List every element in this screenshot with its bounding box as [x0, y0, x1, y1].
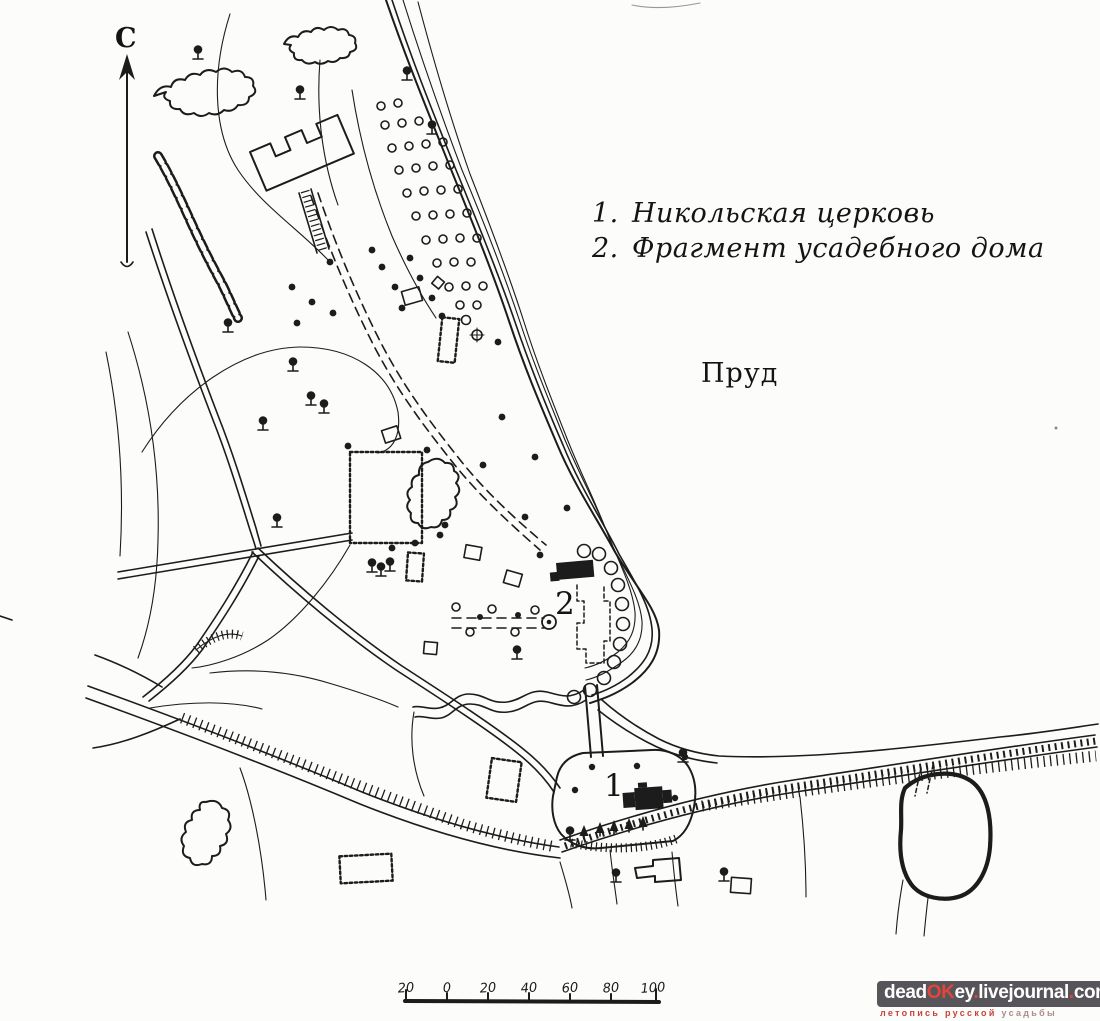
tree-clouds — [154, 27, 356, 865]
church-number-marker: 1 — [604, 768, 624, 804]
manor-number-marker: 2 — [555, 586, 575, 622]
garden-square — [350, 452, 459, 582]
legend-item-label: Никольская церковь — [632, 198, 935, 229]
watermark-site: deadOKey.livejournal.com — [877, 981, 1100, 1007]
pond-shoreline — [386, 0, 659, 703]
contours — [0, 3, 1058, 936]
map-legend: 1. Никольская церковь 2. Фрагмент усадеб… — [592, 198, 1045, 268]
north-arrow — [119, 54, 135, 267]
legend-item-label: Фрагмент усадебного дома — [632, 233, 1045, 264]
roads — [86, 229, 1097, 858]
legend-item-number: 2. — [592, 233, 632, 264]
manor-fragment — [452, 545, 630, 704]
legend-item-manor: 2. Фрагмент усадебного дома — [592, 233, 1045, 264]
scanned-estate-plan: С 1. Никольская церковь 2. Фрагмент усад… — [0, 0, 1100, 1021]
scale-tick-label: 20 — [397, 980, 415, 996]
scale-tick-label: 0 — [442, 981, 451, 997]
watermark-text-part: OK — [927, 982, 955, 1003]
scale-tick-label: 40 — [520, 980, 538, 996]
watermark: deadOKey.livejournal.com летопись русско… — [877, 981, 1100, 1018]
watermark-tagline: летопись русской усадьбы — [877, 1008, 1100, 1018]
watermark-tagline-red: летопись русской — [880, 1008, 997, 1018]
watermark-text-part: dead — [884, 982, 927, 1003]
legend-item-number: 1. — [592, 198, 632, 229]
scale-tick-label: 60 — [561, 980, 579, 996]
north-label: С — [115, 23, 137, 54]
map-drawing — [0, 0, 1100, 1021]
small-pond — [900, 774, 990, 899]
watermark-text-part: com — [1074, 982, 1100, 1003]
scale-tick-label: 20 — [479, 980, 497, 996]
big-house-footprint — [250, 115, 354, 191]
pond-label: Пруд — [701, 358, 778, 389]
scale-tick-label: 80 — [602, 980, 620, 996]
legend-item-church: 1. Никольская церковь — [592, 198, 1045, 229]
watermark-text-part: livejournal — [978, 982, 1069, 1003]
tree-dots — [289, 247, 689, 802]
watermark-tagline-muted: усадьбы — [1001, 1008, 1057, 1018]
watermark-text-part: ey — [954, 982, 973, 1003]
scale-tick-label: 100 — [640, 980, 666, 997]
